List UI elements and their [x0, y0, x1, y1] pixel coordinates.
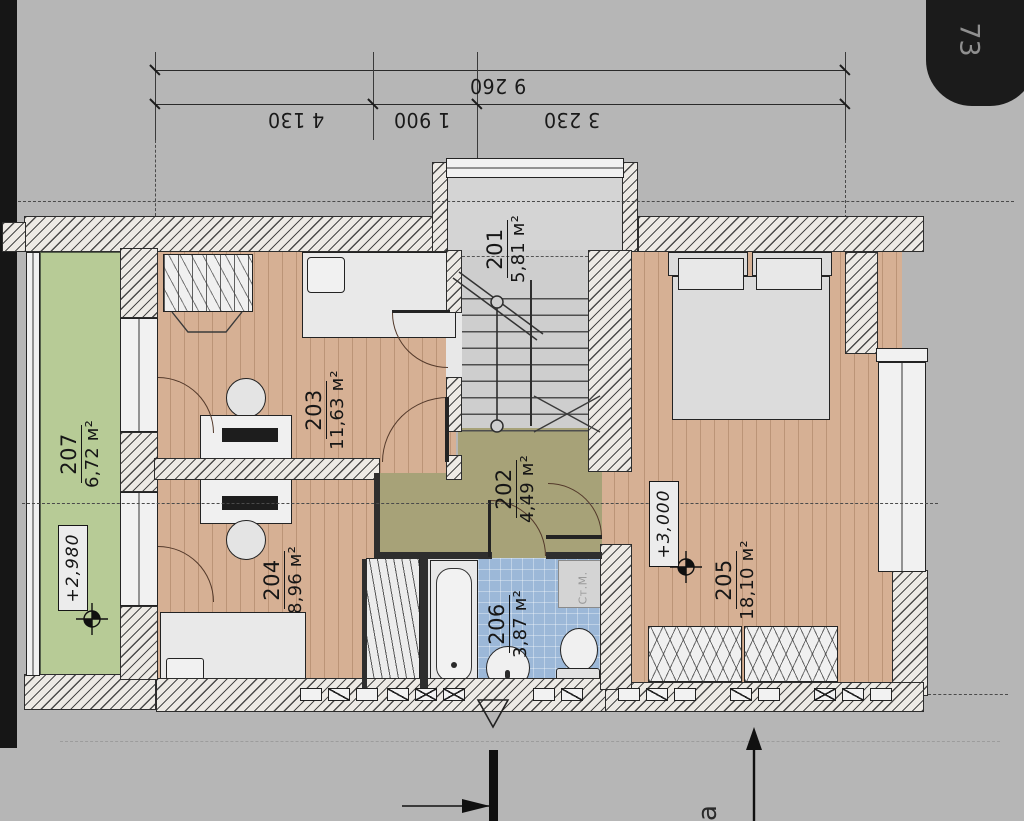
vent-block [814, 688, 836, 701]
vent-block [758, 688, 780, 701]
stair-wall-left-upper [446, 250, 462, 313]
elevation-mark-3000: +3,000 [649, 481, 679, 567]
stair-wall-right [588, 250, 632, 472]
monitor-1 [222, 428, 278, 442]
door-leaf-205 [546, 535, 602, 539]
wall-corridor-bath-right [546, 552, 602, 559]
door-leaf-206 [488, 500, 491, 557]
dimension-segment-3-label: 3 230 [543, 108, 600, 132]
vent-block [415, 688, 437, 701]
wall-corridor-bath-left [374, 552, 492, 559]
page-number-label: 73 [954, 22, 985, 56]
corridor-202-extension-floor [374, 473, 470, 558]
room-stamp-205: 205 18,10 м² [713, 535, 767, 625]
room-201-area: 5,81 м² [508, 215, 530, 283]
room-stamp-203: 203 11,63 м² [303, 365, 357, 455]
vent-block [870, 688, 892, 701]
wall-right-upper [845, 252, 878, 354]
room-203-number: 203 [303, 381, 327, 439]
room-202-number: 202 [493, 460, 517, 518]
right-window-sill [876, 348, 928, 362]
door-leaf-203-stair [392, 310, 450, 313]
extension-line-4 [845, 52, 846, 140]
dimension-overall-label: 9 260 [469, 74, 526, 98]
room-202-area: 4,49 м² [517, 455, 539, 523]
bathtub-drain [451, 662, 457, 668]
partial-annotation-text: а [693, 805, 723, 821]
room-201-number: 201 [484, 220, 508, 278]
page-number-tab: 73 [926, 0, 1024, 106]
room-stamp-204: 204 8,96 м² [261, 535, 315, 625]
vent-block [618, 688, 640, 701]
bed-205-pillow-right [756, 258, 822, 290]
axis-line-horizontal-middle [22, 503, 938, 504]
vent-block [328, 688, 350, 701]
washing-machine-label: Ст.М. [577, 561, 590, 605]
room-207-area: 6,72 м² [82, 420, 104, 488]
balcony-parapet [26, 252, 40, 676]
dimension-segment-1-label: 4 130 [267, 108, 324, 132]
closet-205-left [648, 626, 742, 682]
vent-block [730, 688, 752, 701]
wardrobe-204-niche [366, 558, 420, 688]
corner-pilaster [2, 222, 26, 252]
elevation-mark-2980: +2,980 [58, 525, 88, 611]
room-stamp-207: 207 6,72 м² [58, 409, 112, 499]
left-wall-pier-2 [120, 432, 158, 492]
faint-guide-line [60, 741, 1000, 742]
axis-vertical-1 [155, 140, 156, 216]
wall-204-corridor [374, 473, 380, 558]
left-wall-pier-3 [120, 606, 158, 680]
vent-block [561, 688, 583, 701]
bed-205-pillow-left [678, 258, 744, 290]
door-leaf-203-corridor [445, 397, 449, 462]
room-205-number: 205 [713, 551, 737, 609]
wall-205-lower [600, 544, 632, 690]
toilet-bowl [560, 628, 598, 672]
vent-block [674, 688, 696, 701]
vestibule-window [446, 158, 624, 178]
dimension-line-overall [155, 70, 845, 71]
room-stamp-201: 201 5,81 м² [484, 204, 538, 294]
bed-204-pillow [166, 658, 204, 680]
dimension-line-segments [155, 104, 845, 105]
office-chair-2 [226, 520, 266, 560]
axis-line-horizontal-bottom-stub [928, 694, 1008, 695]
extension-line-1 [155, 52, 156, 140]
vent-block [300, 688, 322, 701]
extension-line-2 [373, 52, 374, 140]
left-wall-pier-1 [120, 248, 158, 318]
room-205-doorway-floor [600, 470, 632, 546]
wall-top-left [24, 216, 434, 252]
wall-wardrobe-tub [420, 559, 428, 690]
stair-treads [462, 298, 590, 432]
right-window [878, 362, 926, 572]
wall-wardrobe-left [362, 559, 367, 690]
left-black-strip [0, 0, 17, 748]
dimension-segment-2-label: 1 900 [393, 108, 450, 132]
bed-205-mattress [672, 276, 830, 420]
room-stamp-206: 206 3,87 м² [486, 579, 540, 669]
room-stamp-202: 202 4,49 м² [493, 444, 547, 534]
room-206-number: 206 [486, 595, 510, 653]
vent-block [443, 688, 465, 701]
vent-block [533, 688, 555, 701]
vent-block [387, 688, 409, 701]
room-204-number: 204 [261, 551, 285, 609]
wall-right-lower [892, 570, 928, 696]
room-206-area: 3,87 м² [510, 590, 532, 658]
balcony-door-window-204 [120, 492, 158, 606]
vent-block [842, 688, 864, 701]
room-204-area: 8,96 м² [285, 546, 307, 614]
room-207-number: 207 [58, 425, 82, 483]
divider-203-204 [154, 458, 380, 480]
vestibule-wall-right [622, 162, 638, 252]
office-chair-1 [226, 378, 266, 418]
section-cut-mark [402, 750, 498, 821]
room-205-area: 18,10 м² [737, 540, 759, 620]
balcony-door-window-203 [120, 318, 158, 432]
floor-plan-page: 73 Ст.М. [0, 0, 1024, 821]
room-203-area: 11,63 м² [327, 370, 349, 450]
closet-205-right [744, 626, 838, 682]
bed-203-pillow [307, 257, 345, 293]
axis-line-horizontal-upper [18, 201, 1014, 202]
wall-top-right [638, 216, 924, 252]
vent-block [646, 688, 668, 701]
vent-block [356, 688, 378, 701]
wardrobe-203 [163, 254, 253, 312]
